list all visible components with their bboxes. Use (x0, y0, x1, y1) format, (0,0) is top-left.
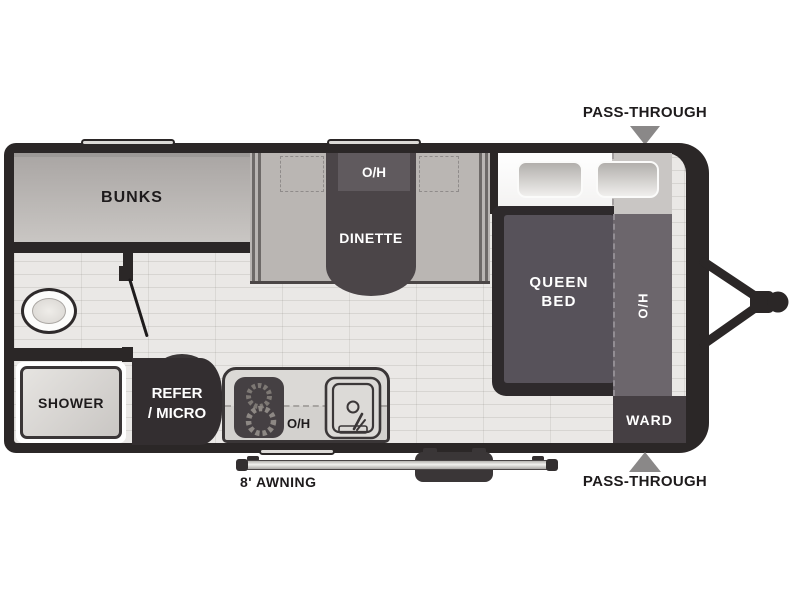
refer-label-line2: / MICRO (148, 404, 206, 424)
bathroom-divider-wall (14, 348, 133, 361)
pass-through-label-bottom: PASS-THROUGH (557, 473, 733, 490)
dinette-cushion-right (419, 156, 459, 192)
shower-label: SHOWER (38, 395, 104, 411)
dinette-bench-back-left (258, 153, 261, 283)
bed-overhead-cabinet: O/H (613, 214, 672, 396)
interior-wall (14, 242, 250, 253)
refer-label-line1: REFER (152, 384, 203, 404)
dinette-cushion-left (280, 156, 324, 192)
wardrobe: WARD (613, 396, 686, 443)
bed-overhead-label: O/H (636, 292, 651, 318)
floorplan-canvas: PASS-THROUGH BUNKS O/H DINETTE QUEEN BED… (0, 0, 800, 600)
awning-end-cap (236, 459, 248, 471)
pillow (596, 161, 659, 198)
dinette-bench-back-right (485, 153, 488, 283)
shower-frame: SHOWER (16, 362, 126, 443)
awning-label: 8' AWNING (240, 474, 317, 490)
window (259, 448, 335, 455)
awning-end-cap (546, 459, 558, 471)
dinette-bench-back-left (252, 153, 255, 283)
toilet-lid (32, 298, 66, 324)
queen-bed-label-line2: BED (541, 292, 576, 312)
interior-wall-stub (490, 153, 498, 214)
toilet (21, 288, 77, 334)
queen-bed-label-line1: QUEEN (529, 273, 588, 293)
bunks-area: BUNKS (14, 153, 250, 242)
awning-bar (237, 460, 557, 470)
pillow (517, 161, 583, 198)
wardrobe-label: WARD (626, 412, 673, 428)
dinette-overhead-cabinet: O/H (338, 153, 410, 191)
dinette-bench-back-right (479, 153, 482, 283)
dinette-overhead-label: O/H (362, 165, 386, 180)
bunks-label: BUNKS (101, 189, 163, 207)
cooktop-icon (234, 377, 284, 443)
pass-through-label-top: PASS-THROUGH (557, 104, 733, 121)
window (327, 139, 421, 146)
dinette-label: DINETTE (326, 230, 416, 246)
hitch-tongue (690, 248, 800, 363)
shower: SHOWER (20, 366, 122, 439)
pass-through-arrow-bottom-icon (629, 452, 661, 472)
kitchen-overhead-label: O/H (287, 416, 310, 431)
refrigerator-microwave: REFER / MICRO (132, 358, 222, 445)
sink-icon (324, 376, 382, 445)
queen-bed: QUEEN BED (504, 215, 614, 383)
window (81, 139, 175, 146)
